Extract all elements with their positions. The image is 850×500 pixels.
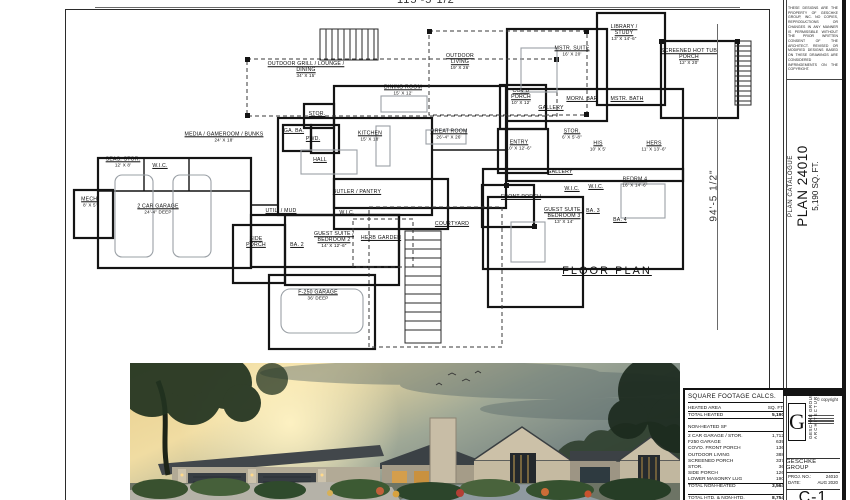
- top-dimension-line: [95, 7, 740, 8]
- total-heated-row: TOTAL HEATED 5,190: [688, 412, 784, 419]
- firm-name: GESCHKE GROUP: [786, 458, 840, 473]
- house-rendering: [130, 363, 680, 500]
- square-footage-table: SQUARE FOOTAGE CALCS. HEATED AREA SQ. FT…: [683, 388, 789, 500]
- non-heated-header: NON-HEATED SF: [688, 423, 784, 432]
- grand-total-label: TOTAL HTD. & NON-HTD.: [688, 496, 745, 500]
- plan-title: FLOOR PLAN: [562, 265, 652, 277]
- non-heated-rows: 2 CAR GARAGE / STOR.1,712F250 GARAGE639C…: [688, 433, 784, 483]
- firm-logo-icon: G: [788, 403, 806, 441]
- project-info-section: PROJ. NO.: 24010 DATE: AUG 2020: [786, 472, 840, 490]
- protected-label: PROTECTED: [786, 0, 840, 2]
- plan-catalogue-block: PLAN CATALOGUE PLAN 24010 5,190 SQ. FT.: [788, 140, 840, 232]
- firm-logo-section: © copyright G GESCHKE GROUP ARCHITECTURE: [786, 396, 840, 459]
- divider: [786, 79, 842, 80]
- date-label: DATE:: [788, 480, 801, 485]
- proj-no-label: PROJ. NO.:: [788, 474, 811, 479]
- plan-sqft: 5,190 SQ. FT.: [811, 140, 820, 232]
- sqft-unit-label: SQ. FT.: [768, 406, 784, 411]
- firm-vertical-text: GESCHKE GROUP ARCHITECTURE: [808, 399, 818, 439]
- total-non-heated-label: TOTAL NON-HEATED: [688, 484, 736, 489]
- sheet-number: C-1: [786, 489, 840, 500]
- table-title: SQUARE FOOTAGE CALCS.: [688, 392, 784, 403]
- heated-area-label: HEATED AREA: [688, 406, 721, 411]
- table-header-row: HEATED AREA SQ. FT.: [688, 405, 784, 412]
- plan-number: PLAN 24010: [795, 140, 810, 232]
- grand-total-row: TOTAL HTD. & NON-HTD. 8,754: [688, 494, 784, 500]
- date-value: AUG 2020: [817, 480, 838, 485]
- catalogue-label: PLAN CATALOGUE: [788, 140, 794, 232]
- top-dimension-label: 115'-5 1/2": [397, 0, 460, 6]
- copyright-paragraph: THESE DESIGNS ARE THE PROPERTY OF GESCHK…: [788, 6, 838, 72]
- plan-sheet: 115'-5 1/2" 94'-5 1/2" OUTDOOR GRILL / L…: [0, 0, 850, 500]
- proj-no-value: 24010: [826, 474, 838, 479]
- total-heated-label: TOTAL HEATED: [688, 413, 723, 418]
- right-dimension-label: 94'-5 1/2": [709, 169, 720, 221]
- total-non-heated-row: TOTAL NON-HEATED 3,564: [688, 483, 784, 490]
- firm-line2: ARCHITECTURE: [813, 392, 818, 439]
